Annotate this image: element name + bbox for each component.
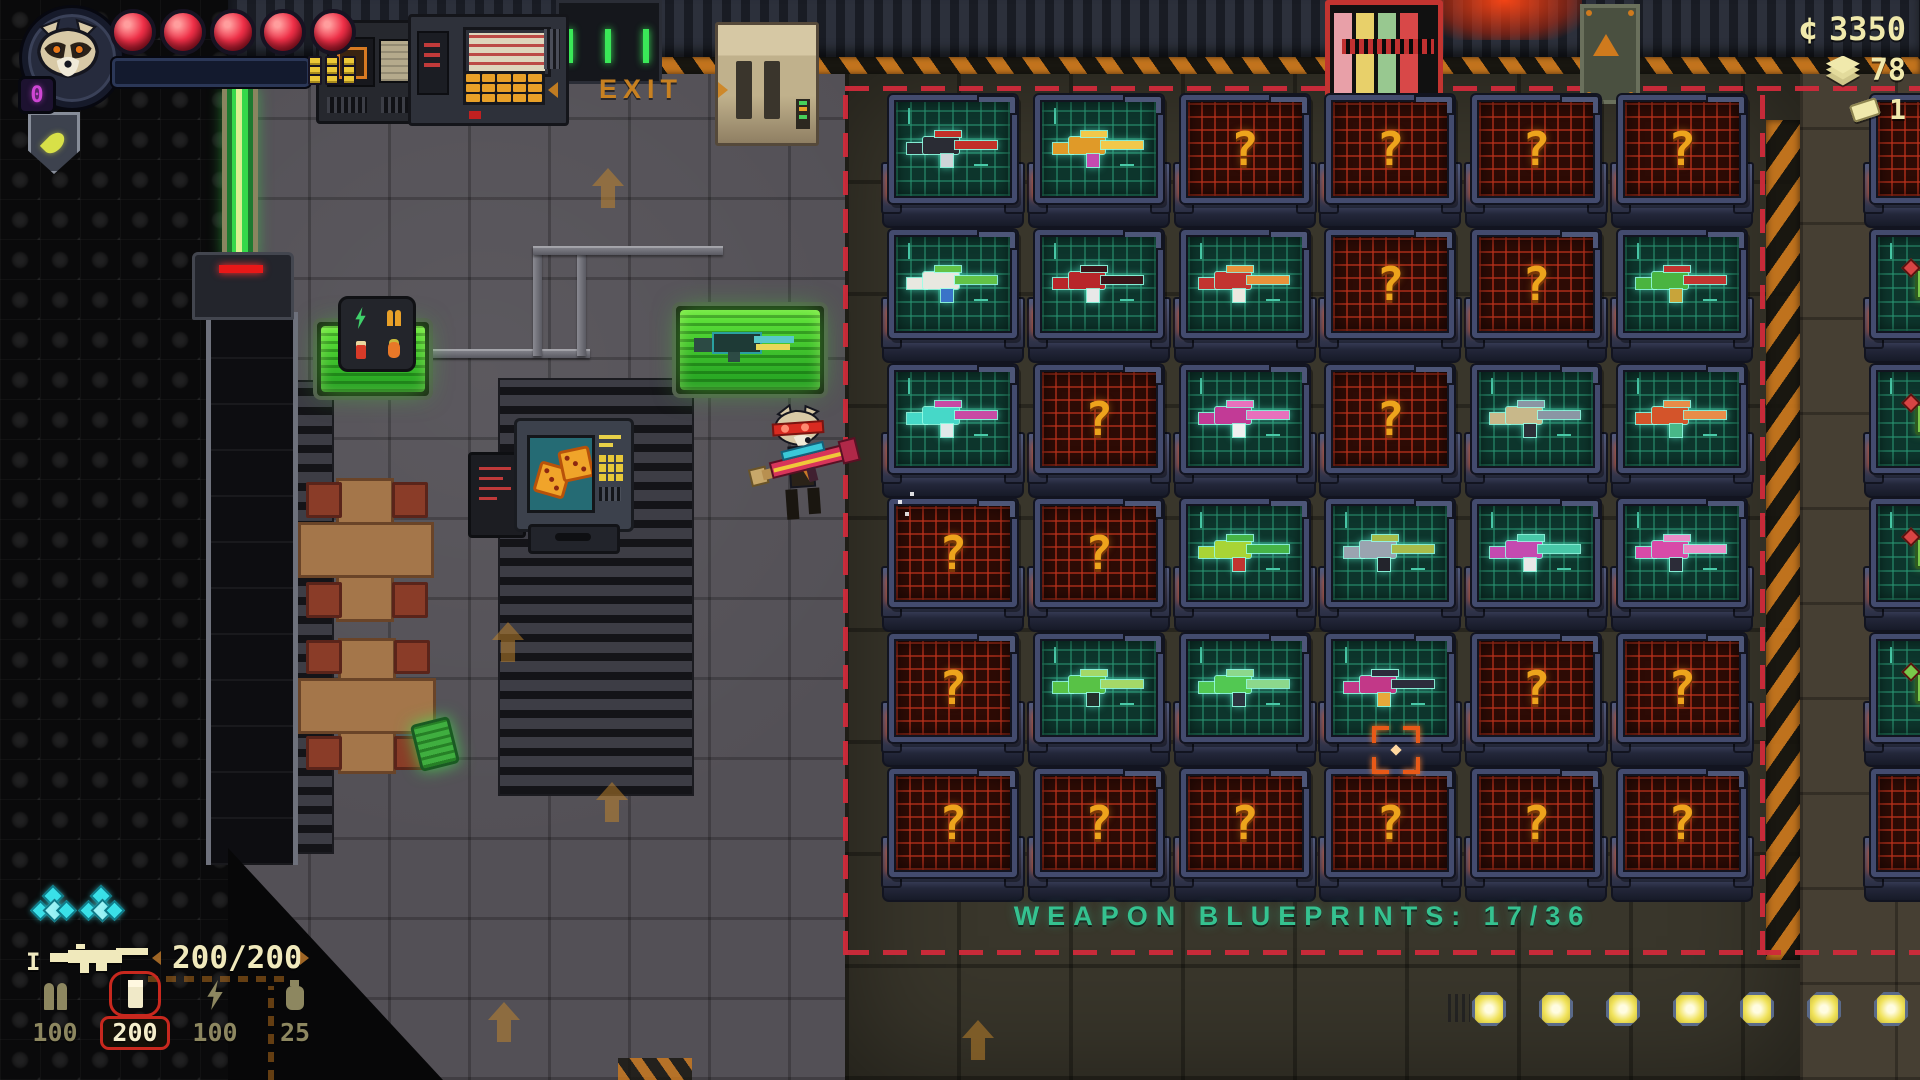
unknown-blueprint-glyph: ? — [1085, 800, 1113, 846]
vending-label — [1332, 35, 1444, 58]
ammo-slot-bullets[interactable]: 100 — [26, 980, 84, 1050]
unknown-blueprint-glyph: ? — [1231, 800, 1259, 846]
case-frame: ? — [1326, 769, 1454, 877]
blueprint-case[interactable] — [880, 95, 1026, 230]
case-screen — [896, 102, 1010, 196]
weapon-sprite — [1636, 531, 1728, 575]
health-orbs — [110, 9, 356, 55]
case-frame: ? — [1326, 365, 1454, 473]
case-screen: ? — [1625, 776, 1739, 870]
weapon-sprite — [1636, 262, 1728, 306]
weapon-sprite — [1053, 666, 1145, 710]
blueprint-case[interactable]: ? — [1026, 769, 1172, 904]
dark-pillar — [206, 312, 298, 865]
dice-reroll-machine[interactable] — [468, 418, 628, 548]
blueprint-case[interactable]: ? — [1609, 634, 1755, 769]
ammo-arrow-right-icon — [300, 951, 309, 965]
unknown-blueprint-glyph: ? — [939, 530, 967, 576]
ammo-slot-count: 200 — [100, 1016, 169, 1050]
stack-icon — [1826, 56, 1860, 86]
blueprint-case[interactable] — [1862, 230, 1920, 365]
weapon-sprite — [1199, 397, 1291, 441]
room-border-right — [1760, 86, 1765, 955]
case-frame — [1326, 499, 1454, 607]
case-frame — [889, 365, 1017, 473]
wall-terminal-machine[interactable] — [408, 14, 569, 126]
switch-bank — [544, 29, 560, 69]
hazard-stripe-vertical — [1766, 120, 1800, 960]
crate-slot — [736, 61, 752, 119]
blueprint-case[interactable] — [1609, 499, 1755, 634]
gren-icon — [278, 980, 312, 1010]
chip-blueprint-icon — [1915, 537, 1920, 569]
record-light — [469, 111, 481, 119]
case-screen — [1479, 372, 1593, 466]
case-frame — [1035, 230, 1163, 338]
blueprint-case[interactable] — [1862, 499, 1920, 634]
ammo-slot-energy[interactable]: 100 — [186, 980, 244, 1050]
blueprint-case[interactable]: ? — [1026, 365, 1172, 500]
xp-segment — [325, 56, 339, 85]
weapon-sprite — [907, 262, 999, 306]
blueprint-case[interactable] — [1172, 499, 1318, 634]
weapon-hologram — [694, 326, 798, 362]
energy-icon — [345, 303, 376, 333]
case-screen — [1878, 237, 1920, 331]
blueprint-case[interactable]: ? — [880, 499, 1026, 634]
game-viewport: EXIT — [0, 0, 1920, 1080]
health-orb — [260, 9, 306, 55]
currency-value: 3350 — [1829, 10, 1906, 48]
case-screen: ? — [1042, 776, 1156, 870]
blueprint-case[interactable]: ? — [1026, 499, 1172, 634]
raccoon-player-sprite — [748, 404, 874, 536]
health-orb — [160, 9, 206, 55]
crate-slot — [764, 61, 780, 119]
weapon-tier: I — [26, 948, 40, 976]
case-screen — [896, 237, 1010, 331]
gem-cluster-icon — [80, 888, 120, 924]
weapon-sprite — [907, 397, 999, 441]
pipe — [533, 246, 723, 255]
floor-light-row — [1472, 992, 1908, 1026]
pipe — [430, 349, 590, 358]
blueprint-case[interactable]: ? — [1317, 365, 1463, 500]
blueprint-case[interactable]: ? — [1172, 769, 1318, 904]
case-frame: ? — [1618, 769, 1746, 877]
ammo-types-card — [338, 296, 416, 372]
bullets-icon — [38, 980, 72, 1010]
case-screen — [1878, 641, 1920, 735]
blueprint-case[interactable] — [1026, 230, 1172, 365]
case-screen: ? — [896, 776, 1010, 870]
blueprint-case[interactable] — [880, 365, 1026, 500]
floor-light — [1606, 992, 1640, 1026]
weapon-sprite — [1199, 666, 1291, 710]
bullets-icon — [378, 303, 409, 333]
unknown-blueprint-glyph: ? — [1085, 530, 1113, 576]
case-frame — [1472, 365, 1600, 473]
case-screen — [1878, 372, 1920, 466]
blueprint-case[interactable] — [1862, 365, 1920, 500]
currency-tickets: 1 — [1851, 93, 1906, 126]
ammo-slot-shells[interactable]: 200 — [106, 980, 164, 1050]
case-frame: ? — [1472, 634, 1600, 742]
grenade-icon — [378, 335, 409, 365]
blueprint-case[interactable] — [1463, 365, 1609, 500]
case-frame — [1035, 634, 1163, 742]
pipe — [577, 246, 586, 356]
unknown-blueprint-glyph: ? — [1377, 800, 1405, 846]
sparkle — [910, 492, 914, 496]
unknown-blueprint-glyph: ? — [1522, 800, 1550, 846]
unknown-blueprint-glyph: ? — [1522, 126, 1550, 172]
blueprint-case[interactable]: ? — [1609, 95, 1755, 230]
blueprint-case[interactable] — [1026, 95, 1172, 230]
tube-console — [192, 252, 294, 320]
blueprint-case[interactable]: ? — [1172, 95, 1318, 230]
blueprint-side-column: ?? — [1862, 95, 1920, 905]
currency-materials: 78 — [1826, 53, 1906, 88]
energy-icon — [198, 980, 232, 1010]
case-frame: ? — [1326, 95, 1454, 203]
case-screen: ? — [1042, 506, 1156, 600]
case-screen — [896, 372, 1010, 466]
shells-icon — [118, 980, 152, 1008]
case-screen: ? — [1878, 776, 1920, 870]
case-frame: ? — [889, 634, 1017, 742]
exit-arrow-icon — [548, 82, 558, 98]
gem-counter — [32, 888, 120, 924]
case-frame: ? — [1035, 365, 1163, 473]
blueprint-case[interactable]: ? — [880, 634, 1026, 769]
case-screen — [1042, 641, 1156, 735]
chip-blueprint-icon — [1915, 672, 1920, 704]
blueprint-grid: ??????????????????? — [880, 95, 1755, 904]
case-screen — [1188, 641, 1302, 735]
case-screen — [1625, 237, 1739, 331]
blueprint-case[interactable] — [1172, 365, 1318, 500]
sparkle — [905, 512, 909, 516]
weapon-sprite — [1053, 127, 1145, 171]
case-screen: ? — [1479, 776, 1593, 870]
terminal-side-panel — [417, 31, 449, 95]
blueprint-case[interactable]: ? — [1317, 230, 1463, 365]
ammo-slot-count: 25 — [280, 1018, 310, 1047]
case-frame — [1871, 634, 1920, 742]
blueprint-case[interactable]: ? — [1463, 634, 1609, 769]
blueprint-case[interactable]: ? — [1463, 230, 1609, 365]
unknown-blueprint-glyph: ? — [1522, 665, 1550, 711]
blueprint-case[interactable] — [1862, 634, 1920, 769]
weapon-sprite — [1344, 666, 1436, 710]
blueprint-case[interactable]: ? — [1463, 95, 1609, 230]
blueprint-case[interactable] — [1026, 634, 1172, 769]
weapon-sprite — [907, 127, 999, 171]
case-frame: ? — [1472, 95, 1600, 203]
weapon-sprite — [1053, 262, 1145, 306]
terminal-screen — [463, 27, 551, 77]
case-screen: ? — [1625, 102, 1739, 196]
weapon-sprite — [1490, 531, 1582, 575]
case-frame — [1618, 365, 1746, 473]
pipe — [533, 246, 542, 356]
exit-floor-label: EXIT — [566, 74, 716, 105]
ammo-counter: 200/200 — [172, 940, 303, 976]
currency-panel: ¢3350781 — [1798, 10, 1906, 126]
case-screen: ? — [1625, 641, 1739, 735]
blueprint-case[interactable] — [1172, 230, 1318, 365]
case-frame: ? — [1326, 230, 1454, 338]
case-screen: ? — [1188, 102, 1302, 196]
health-orb — [310, 9, 356, 55]
supply-crate[interactable] — [715, 22, 819, 146]
machine-controls[interactable] — [599, 433, 625, 503]
weapon-sprite — [1199, 531, 1291, 575]
case-frame — [1618, 499, 1746, 607]
health-orb — [110, 9, 156, 55]
blueprint-case[interactable] — [1317, 499, 1463, 634]
case-frame — [1181, 365, 1309, 473]
case-frame: ? — [1618, 634, 1746, 742]
ammo-arrow-left-icon — [152, 951, 161, 965]
room-border-bottom — [845, 950, 1920, 955]
unknown-blueprint-glyph: ? — [1668, 126, 1696, 172]
currency-value: 78 — [1870, 53, 1906, 88]
case-frame: ? — [889, 769, 1017, 877]
exit-arrow-icon — [718, 82, 728, 98]
floor-light — [1539, 992, 1573, 1026]
floor-light — [1740, 992, 1774, 1026]
case-screen — [1625, 506, 1739, 600]
weapon-sprite — [1636, 397, 1728, 441]
case-screen: ? — [1333, 102, 1447, 196]
case-screen: ? — [1479, 237, 1593, 331]
case-frame: ? — [1181, 95, 1309, 203]
ammo-slot-count: 100 — [32, 1018, 77, 1047]
equipped-weapon-icon — [50, 938, 160, 980]
case-screen: ? — [896, 506, 1010, 600]
case-frame: ? — [1618, 95, 1746, 203]
unknown-blueprint-glyph: ? — [1668, 800, 1696, 846]
blueprint-case[interactable] — [1463, 499, 1609, 634]
case-screen — [1042, 237, 1156, 331]
ammo-type-slots: 10020010025 — [26, 980, 324, 1050]
case-frame: ? — [1472, 769, 1600, 877]
case-frame — [1181, 499, 1309, 607]
case-screen — [1188, 506, 1302, 600]
case-frame — [1871, 499, 1920, 607]
case-screen: ? — [1333, 776, 1447, 870]
currency-value: 1 — [1889, 93, 1906, 126]
chip-blueprint-icon — [1915, 268, 1920, 300]
blueprint-case[interactable] — [880, 230, 1026, 365]
unknown-blueprint-glyph: ? — [1377, 126, 1405, 172]
green-energy-tube — [222, 88, 258, 258]
case-frame — [1472, 499, 1600, 607]
blueprint-case[interactable] — [1172, 634, 1318, 769]
weapon-sprite — [1490, 397, 1582, 441]
wooden-pallet — [298, 638, 434, 772]
case-screen — [1878, 506, 1920, 600]
die-icon — [557, 445, 595, 483]
case-screen: ? — [1333, 237, 1447, 331]
case-frame: ? — [1472, 230, 1600, 338]
aim-cursor — [1372, 726, 1420, 774]
case-frame: ? — [1035, 499, 1163, 607]
floor-light — [1472, 992, 1506, 1026]
case-screen: ? — [1042, 372, 1156, 466]
dice-screen — [527, 435, 595, 513]
unknown-blueprint-glyph: ? — [1377, 261, 1405, 307]
door-led — [605, 29, 611, 63]
case-screen — [1625, 372, 1739, 466]
ticket-icon — [1849, 97, 1881, 123]
floor-light — [1807, 992, 1841, 1026]
unknown-blueprint-glyph: ? — [1668, 665, 1696, 711]
ammo-slot-gren[interactable]: 25 — [266, 980, 324, 1050]
case-frame — [889, 230, 1017, 338]
red-ceiling-glow — [1427, 0, 1582, 40]
weapon-sprite — [1199, 262, 1291, 306]
xp-bar — [112, 58, 310, 87]
terminal-keypad[interactable] — [463, 71, 545, 105]
warning-triangle-icon — [1593, 34, 1619, 56]
blueprint-case[interactable]: ? — [1862, 769, 1920, 904]
machine-body — [514, 418, 634, 532]
case-screen: ? — [1479, 102, 1593, 196]
blueprint-case[interactable]: ? — [1317, 769, 1463, 904]
case-screen — [1188, 372, 1302, 466]
health-orb — [210, 9, 256, 55]
xp-segment — [342, 56, 356, 85]
case-frame — [1181, 634, 1309, 742]
blueprint-case[interactable] — [1609, 365, 1755, 500]
doorway — [556, 0, 662, 84]
warning-sign — [1580, 4, 1640, 104]
case-frame: ? — [1181, 769, 1309, 877]
hazard-stripe-corner — [618, 1058, 692, 1080]
case-screen: ? — [1333, 372, 1447, 466]
case-screen: ? — [1188, 776, 1302, 870]
shell-icon — [345, 335, 376, 365]
blueprint-case[interactable] — [1609, 230, 1755, 365]
unknown-blueprint-glyph: ? — [1231, 126, 1259, 172]
case-screen — [1042, 102, 1156, 196]
unknown-blueprint-glyph: ? — [1377, 396, 1405, 442]
case-frame — [1618, 230, 1746, 338]
unknown-blueprint-glyph: ? — [939, 665, 967, 711]
droplet-icon — [40, 129, 68, 157]
door-led — [643, 29, 649, 63]
floor-light — [1874, 992, 1908, 1026]
case-frame — [1871, 230, 1920, 338]
blueprint-counter: WEAPON BLUEPRINTS: 17/36 — [845, 901, 1760, 932]
player-character — [748, 404, 874, 536]
level-badge: 0 — [18, 76, 56, 114]
case-frame — [1871, 365, 1920, 473]
credits-icon: ¢ — [1798, 12, 1819, 47]
ammo-slot-count: 100 — [192, 1018, 237, 1047]
unknown-blueprint-glyph: ? — [1522, 261, 1550, 307]
xp-segment — [308, 56, 322, 85]
case-screen: ? — [896, 641, 1010, 735]
blueprint-case[interactable]: ? — [880, 769, 1026, 904]
wooden-pallet — [298, 478, 432, 620]
case-frame — [1181, 230, 1309, 338]
case-screen — [1333, 506, 1447, 600]
weapon-sprite — [1344, 531, 1436, 575]
case-frame — [889, 95, 1017, 203]
gem-cluster-icon — [32, 888, 72, 924]
case-frame: ? — [1035, 769, 1163, 877]
blueprint-case[interactable]: ? — [1317, 95, 1463, 230]
chip-blueprint-icon — [1915, 403, 1920, 435]
case-screen — [1188, 237, 1302, 331]
floor-light — [1673, 992, 1707, 1026]
floor-vent — [1448, 994, 1470, 1022]
blueprint-case[interactable]: ? — [1609, 769, 1755, 904]
sparkle — [898, 500, 902, 504]
case-frame: ? — [1871, 769, 1920, 877]
blueprint-case[interactable]: ? — [1463, 769, 1609, 904]
case-screen — [1333, 641, 1447, 735]
machine-base — [528, 524, 620, 554]
unknown-blueprint-glyph: ? — [939, 800, 967, 846]
vent-grille — [327, 97, 367, 113]
xp-segments — [308, 56, 356, 85]
currency-credits: ¢3350 — [1798, 10, 1906, 48]
case-screen — [1479, 506, 1593, 600]
case-screen: ? — [1479, 641, 1593, 735]
case-frame — [1035, 95, 1163, 203]
crate-status-lights — [796, 99, 810, 129]
unknown-blueprint-glyph: ? — [1085, 396, 1113, 442]
